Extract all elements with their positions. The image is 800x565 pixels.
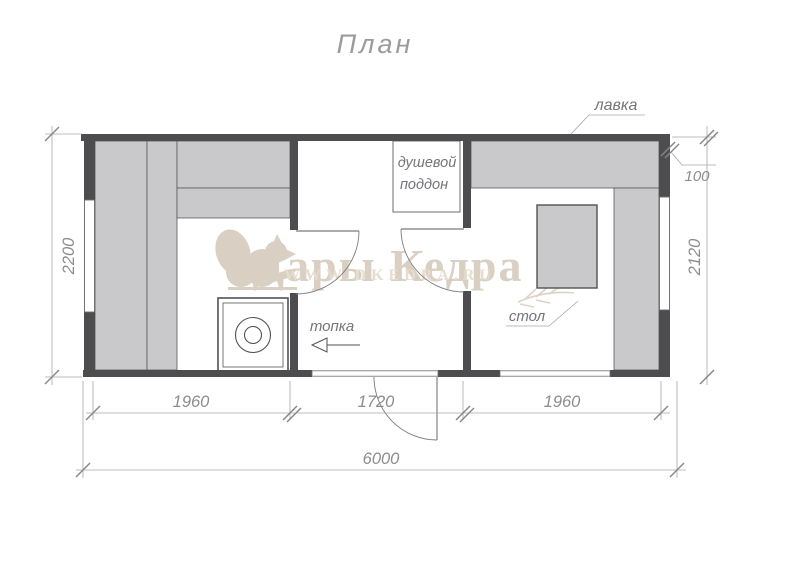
- stove: [218, 298, 288, 372]
- bench-leader-line: [571, 115, 645, 134]
- dimension-bottom-rooms: 1960 1720 1960: [86, 381, 670, 422]
- table: [537, 205, 597, 288]
- dim-right-height: 2120: [686, 238, 704, 277]
- watermark-url-text: WWW.DKEDRA.RU: [284, 267, 496, 284]
- watermark: Дары Кедра WWW.DKEDRA.RU: [210, 225, 574, 307]
- window-left-wall: [85, 200, 95, 312]
- dim-bottom-middle: 1720: [358, 393, 396, 411]
- floor-plan-drawing: Дары Кедра WWW.DKEDRA.RU План: [0, 0, 800, 565]
- dimension-left-2200: 2200: [45, 126, 82, 385]
- shower-tray-label-line1: душевой: [398, 155, 457, 171]
- dim-bottom-left: 1960: [173, 393, 211, 411]
- sauna-bench-top-upper-tier: [177, 141, 290, 188]
- bottom-wall-middle: [438, 370, 500, 377]
- window-bottom-wall: [500, 371, 610, 376]
- rest-room-bench-top: [471, 141, 659, 188]
- shower-tray: душевой поддон: [393, 141, 460, 212]
- dim-wall-offset: 100: [684, 168, 710, 185]
- partition-wall-right-bottom: [463, 291, 471, 370]
- entrance-threshold: [312, 371, 438, 376]
- page-title: План: [337, 29, 414, 59]
- laurel-sprig-icon: [518, 286, 574, 307]
- shower-tray-label-line2: поддон: [400, 177, 448, 193]
- table-label: стол: [509, 308, 546, 325]
- bench-label: лавка: [594, 97, 638, 114]
- sauna-bench-left-outer: [95, 141, 147, 370]
- window-right-wall: [660, 197, 670, 310]
- bottom-wall-right: [610, 370, 669, 377]
- sauna-bench-left-inner: [147, 141, 177, 370]
- bottom-wall-left: [83, 370, 312, 377]
- furnace-label: топка: [310, 318, 354, 335]
- partition-wall-left-top: [290, 141, 298, 230]
- dim-left-height: 2200: [60, 237, 78, 276]
- rest-room-bench-right: [614, 188, 659, 370]
- top-wall: [81, 134, 670, 141]
- floor-plan-page: Дары Кедра WWW.DKEDRA.RU План: [0, 0, 800, 565]
- dim-bottom-right: 1960: [544, 393, 582, 411]
- partition-wall-right-top: [463, 141, 471, 228]
- partition-wall-left-bottom: [290, 293, 298, 370]
- sauna-bench-top-lower-tier: [177, 188, 290, 218]
- dim-total-width: 6000: [363, 450, 401, 468]
- furnace-arrow-icon: [312, 338, 360, 352]
